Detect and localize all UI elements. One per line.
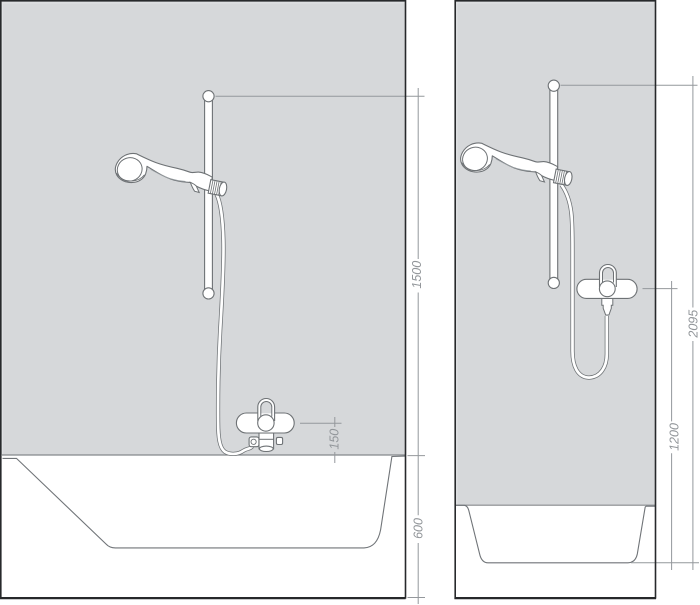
svg-text:2095: 2095 bbox=[687, 310, 700, 339]
svg-text:600: 600 bbox=[411, 518, 425, 539]
svg-text:1200: 1200 bbox=[667, 423, 681, 451]
svg-text:150: 150 bbox=[328, 429, 342, 450]
svg-text:1500: 1500 bbox=[410, 261, 424, 289]
